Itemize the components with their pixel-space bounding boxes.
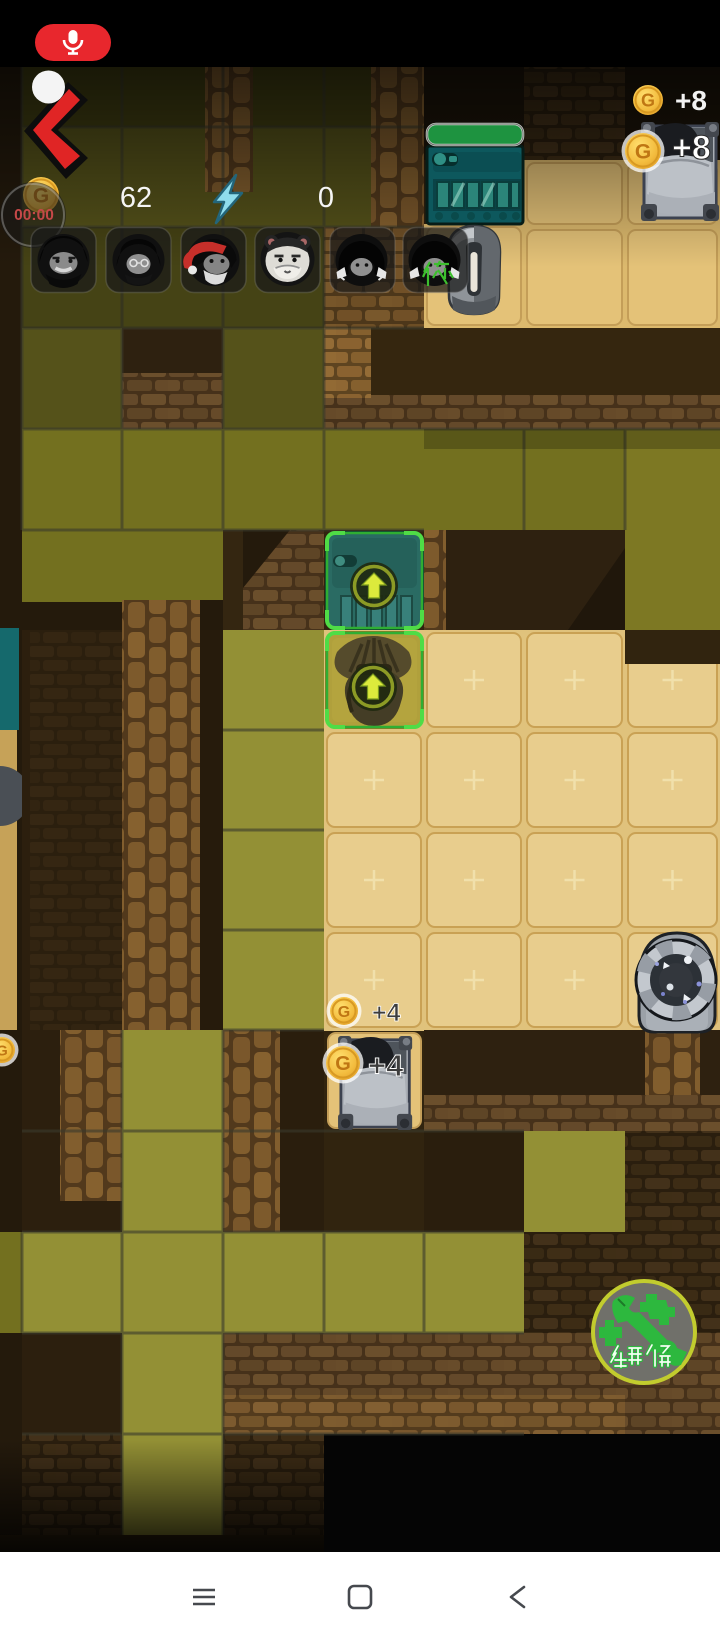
svg-text:00:00: 00:00: [14, 207, 54, 224]
svg-text:G: G: [335, 1053, 351, 1075]
svg-text:0: 0: [318, 182, 334, 214]
svg-text:+8: +8: [675, 85, 707, 116]
svg-text:+8: +8: [672, 129, 711, 167]
svg-text:62: 62: [120, 182, 152, 214]
svg-text:+4: +4: [368, 1048, 404, 1083]
svg-text:+4: +4: [372, 999, 401, 1027]
svg-text:G: G: [641, 90, 655, 110]
svg-text:G: G: [635, 141, 651, 164]
svg-text:G: G: [338, 1004, 350, 1021]
svg-text:G: G: [0, 1042, 8, 1059]
